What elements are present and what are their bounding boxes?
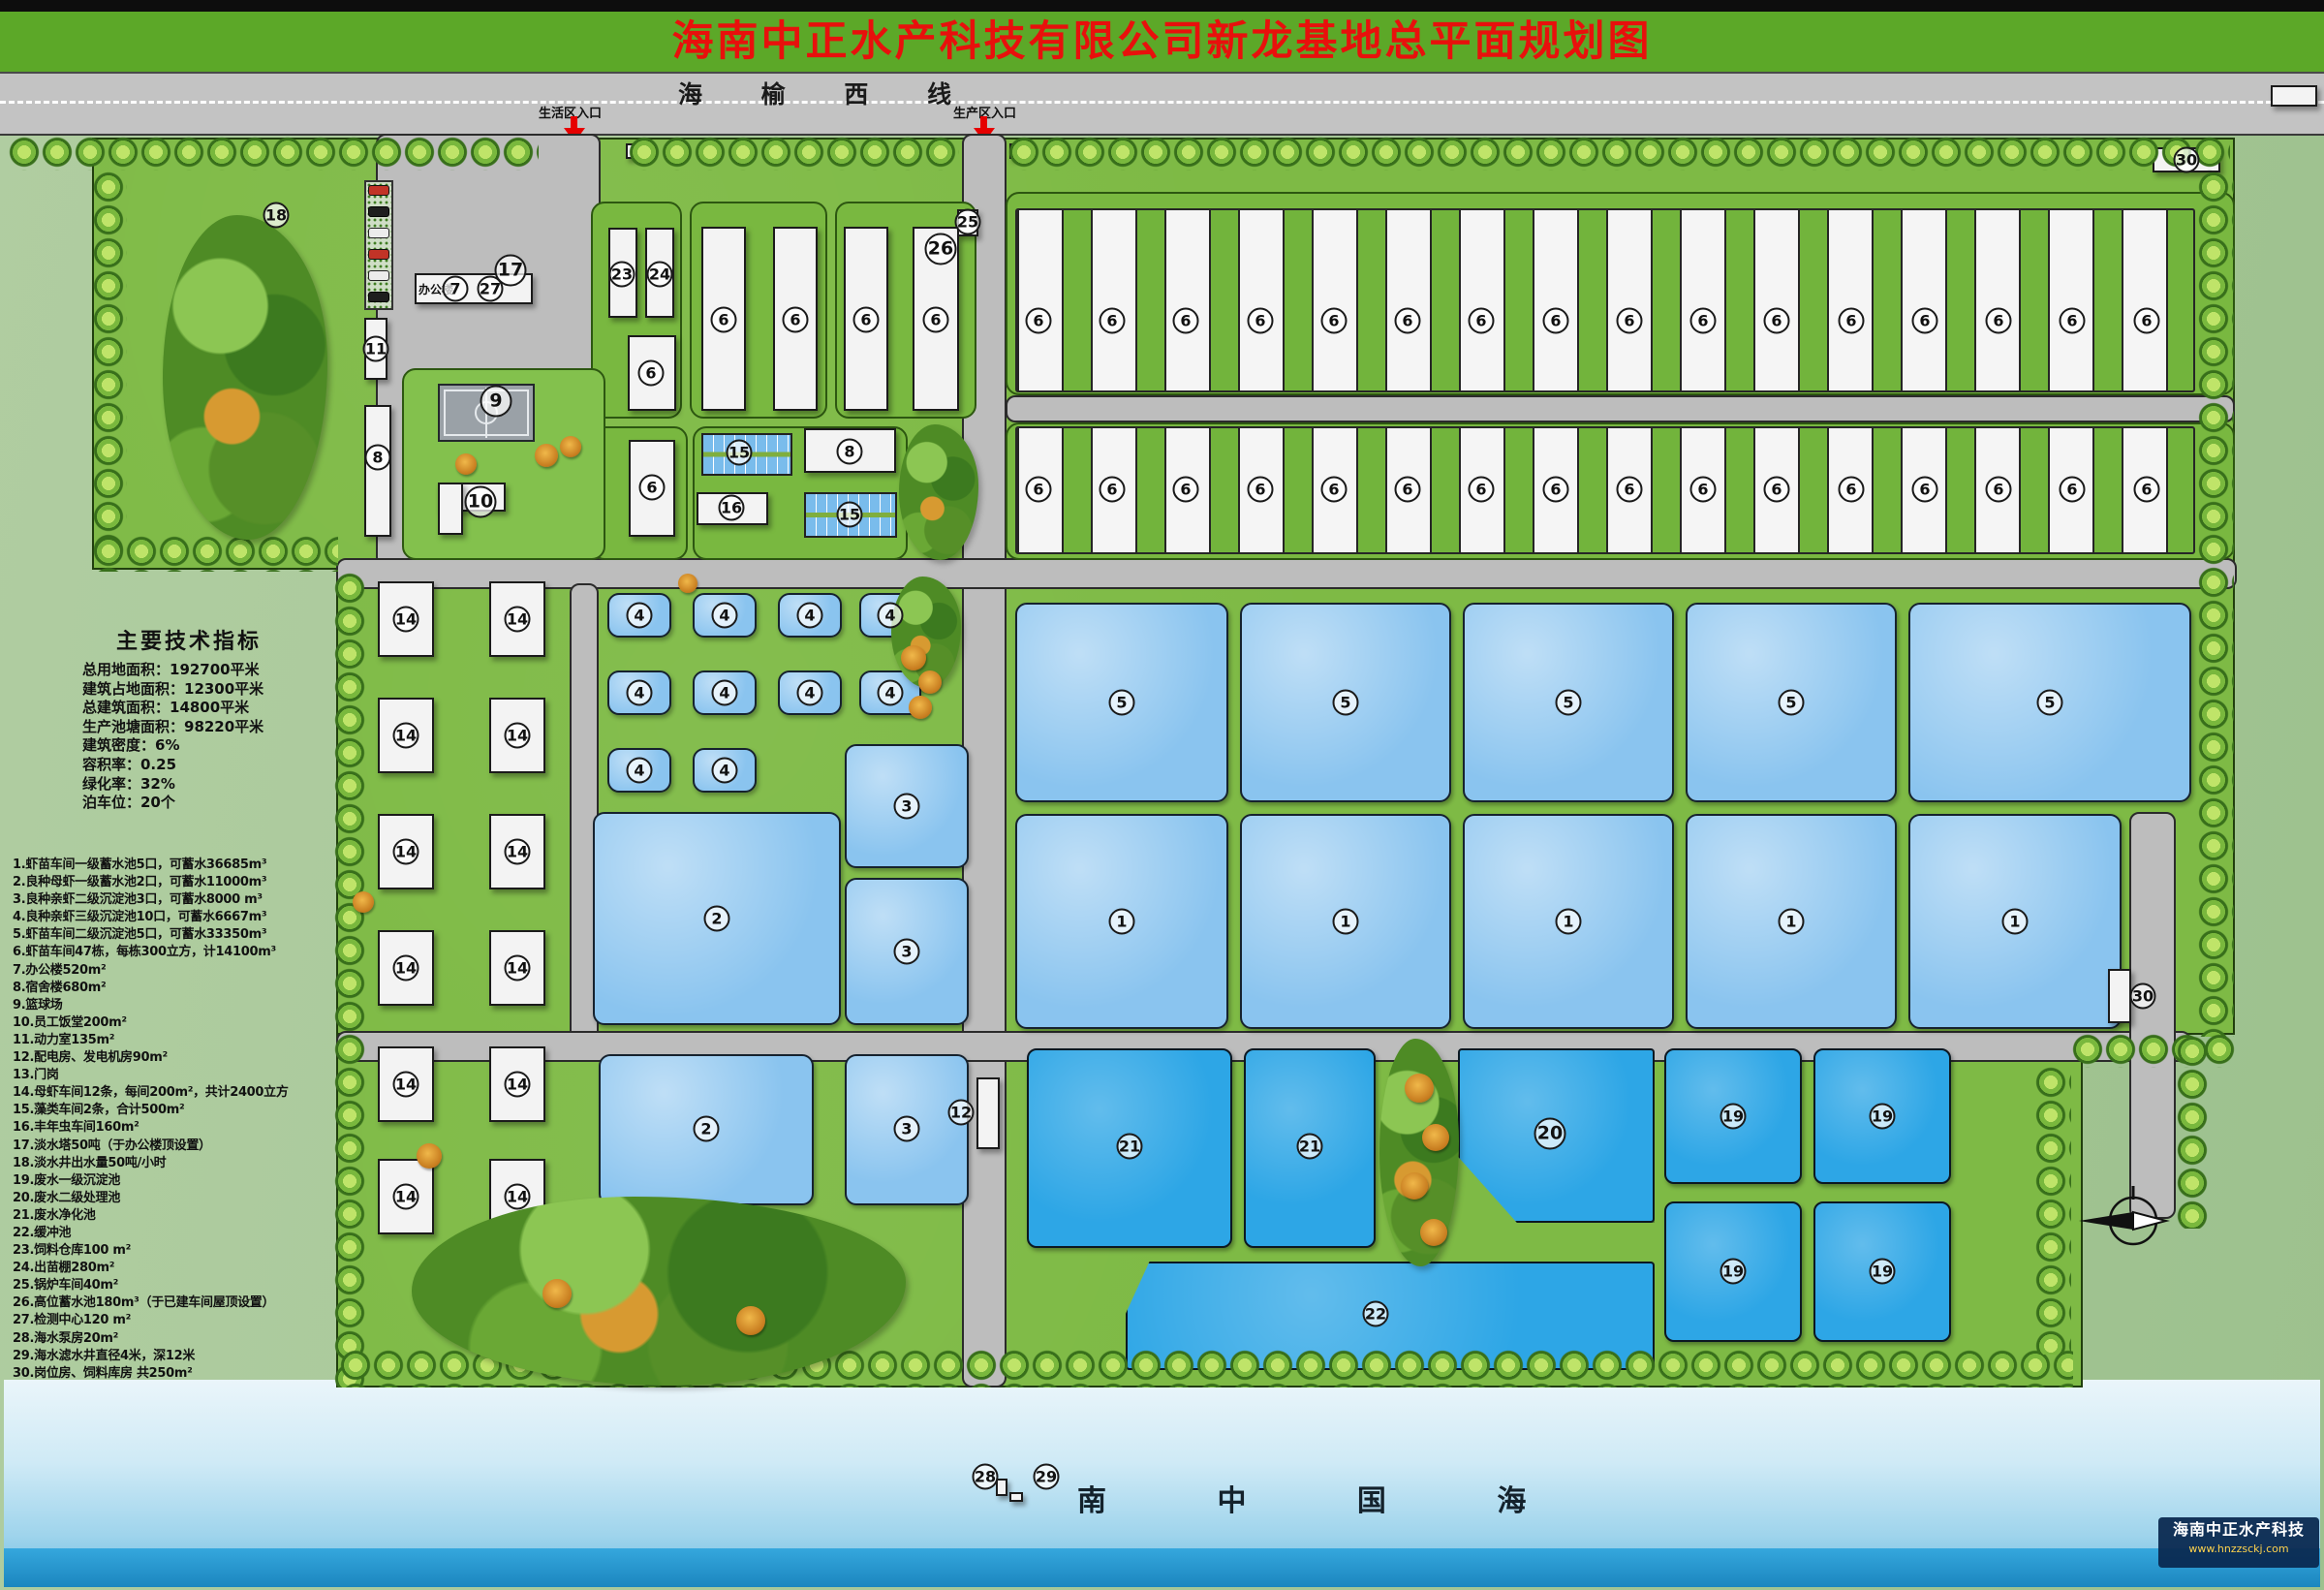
text-line: 5.虾苗车间二级沉淀池5口，可蓄水33350m³ — [13, 926, 289, 944]
map-otree — [535, 444, 558, 467]
entrance-living-arrow — [571, 116, 577, 128]
map-car-r — [368, 185, 389, 196]
text-line: 4.良种亲虾三级沉淀池10口，可蓄水6667m³ — [13, 909, 289, 926]
text-line: 30.岗位房、饲料库房 共250m² — [13, 1365, 289, 1383]
map-bldg — [976, 1077, 1000, 1149]
text-line: 绿化率：32% — [82, 775, 263, 795]
circle-label-11: 11 — [363, 336, 389, 362]
map-otree — [909, 696, 932, 719]
text-line: 11.动力室135m² — [13, 1032, 289, 1049]
circle-label-6: 6 — [1764, 308, 1790, 334]
map-bldg — [364, 405, 391, 537]
text-line: 14.母虾车间12条，每间200m²，共计2400立方 — [13, 1084, 289, 1102]
text-line: 19.废水一级沉淀池 — [13, 1172, 289, 1190]
circle-label-6: 6 — [1100, 477, 1126, 503]
circle-label-15: 15 — [727, 440, 753, 466]
map-car-k — [368, 206, 389, 217]
circle-label-12: 12 — [948, 1100, 975, 1126]
circle-label-6: 6 — [1026, 308, 1052, 334]
text-line: 6.虾苗车间47栋，每栋300立方，计14100m³ — [13, 944, 289, 961]
text-line: 12.配电房、发电机房90m² — [13, 1049, 289, 1067]
text-line: 25.锅炉车间40m² — [13, 1277, 289, 1294]
text-line: 3.良种亲虾二级沉淀池3口，可蓄水8000 m³ — [13, 891, 289, 909]
circle-label-14: 14 — [505, 1184, 531, 1210]
circle-label-21: 21 — [1297, 1134, 1323, 1160]
circle-label-6: 6 — [1173, 308, 1199, 334]
text-line: 9.篮球场 — [13, 997, 289, 1014]
circle-label-6: 6 — [1100, 308, 1126, 334]
text-line: 建筑占地面积：12300平米 — [82, 680, 263, 700]
text-line: 23.饲料仓库100 m² — [13, 1242, 289, 1260]
circle-label-6: 6 — [1321, 477, 1348, 503]
text-line: 22.缓冲池 — [13, 1225, 289, 1242]
map-otree — [1401, 1172, 1428, 1200]
circle-label-9: 9 — [480, 386, 512, 418]
map-otree — [1420, 1219, 1447, 1246]
map-bldg — [2108, 969, 2131, 1023]
circle-label-5: 5 — [1556, 690, 1582, 716]
text-line: 建筑密度：6% — [82, 736, 263, 756]
circle-label-1: 1 — [1109, 909, 1135, 935]
circle-label-28: 28 — [973, 1464, 999, 1490]
circle-label-6: 6 — [1248, 477, 1274, 503]
map-trow — [628, 136, 959, 171]
text-line: 13.门岗 — [13, 1067, 289, 1084]
circle-label-1: 1 — [1779, 909, 1805, 935]
text-line: 17.淡水塔50吨（于办公楼顶设置） — [13, 1138, 289, 1155]
circle-label-6: 6 — [638, 360, 665, 387]
circle-label-22: 22 — [1363, 1301, 1389, 1327]
circle-label-4: 4 — [797, 603, 823, 629]
map-trow — [92, 535, 338, 572]
circle-label-21: 21 — [1117, 1134, 1143, 1160]
map-car-r — [368, 249, 389, 260]
map-tcol — [92, 171, 127, 572]
circle-label-3: 3 — [894, 939, 920, 965]
tech-indicators-list: 总用地面积：192700平米建筑占地面积：12300平米总建筑面积：14800平… — [82, 661, 263, 813]
circle-label-5: 5 — [1333, 690, 1359, 716]
circle-label-6: 6 — [2134, 477, 2160, 503]
map-car-w — [368, 270, 389, 281]
circle-label-6: 6 — [1617, 477, 1643, 503]
logo-company-name: 海南中正水产科技 — [2158, 1517, 2319, 1543]
circle-label-4: 4 — [712, 680, 738, 706]
map-otree — [918, 670, 942, 694]
circle-label-14: 14 — [393, 1184, 419, 1210]
circle-label-19: 19 — [1720, 1104, 1747, 1130]
map-bldg — [1009, 1492, 1023, 1502]
circle-label-6: 6 — [1617, 308, 1643, 334]
map-otree — [542, 1279, 572, 1308]
circle-label-3: 3 — [894, 1116, 920, 1142]
circle-label-6: 6 — [1543, 477, 1569, 503]
circle-label-5: 5 — [1779, 690, 1805, 716]
circle-label-6: 6 — [1690, 308, 1717, 334]
circle-label-1: 1 — [2002, 909, 2029, 935]
map-car-w — [368, 228, 389, 238]
circle-label-6: 6 — [783, 307, 809, 333]
circle-label-24: 24 — [647, 262, 673, 288]
circle-label-8: 8 — [365, 445, 391, 471]
circle-label-6: 6 — [2134, 308, 2160, 334]
text-line: 8.宿舍楼680m² — [13, 980, 289, 997]
circle-label-6: 6 — [1912, 308, 1938, 334]
page-title: 海南中正水产科技有限公司新龙基地总平面规划图 — [0, 14, 2324, 70]
circle-label-4: 4 — [712, 603, 738, 629]
company-logo: 海南中正水产科技 www.hnzzsckj.com — [2158, 1517, 2319, 1568]
map-otree — [1422, 1124, 1449, 1151]
circle-label-6: 6 — [1469, 477, 1495, 503]
circle-label-6: 6 — [1543, 308, 1569, 334]
circle-label-15: 15 — [837, 502, 863, 528]
circle-label-6: 6 — [1690, 477, 1717, 503]
circle-label-26: 26 — [925, 234, 957, 265]
text-line: 24.出苗棚280m² — [13, 1260, 289, 1277]
map-otree — [455, 453, 477, 475]
tech-indicators-title: 主要技术指标 — [116, 624, 262, 655]
circle-label-6: 6 — [1395, 477, 1421, 503]
circle-label-6: 6 — [1248, 308, 1274, 334]
circle-label-14: 14 — [505, 607, 531, 633]
circle-label-5: 5 — [1109, 690, 1135, 716]
circle-label-4: 4 — [878, 603, 904, 629]
circle-label-14: 14 — [393, 723, 419, 749]
map-otree — [736, 1306, 765, 1335]
circle-label-19: 19 — [1870, 1104, 1896, 1130]
circle-label-6: 6 — [1395, 308, 1421, 334]
highway-center-dash — [0, 101, 2324, 104]
text-line: 总建筑面积：14800平米 — [82, 699, 263, 718]
circle-label-14: 14 — [393, 607, 419, 633]
map-otree — [560, 436, 581, 457]
map-tcol — [2034, 1066, 2071, 1355]
text-line: 21.废水净化池 — [13, 1207, 289, 1225]
map-stripband — [1015, 208, 2195, 392]
map-otree — [1405, 1074, 1434, 1103]
circle-label-5: 5 — [2037, 690, 2063, 716]
map-trow — [2071, 1033, 2236, 1068]
circle-label-1: 1 — [1333, 909, 1359, 935]
map-otree — [901, 645, 926, 670]
highway — [0, 72, 2324, 136]
map-road — [336, 558, 2237, 589]
circle-label-6: 6 — [711, 307, 737, 333]
circle-label-4: 4 — [627, 680, 653, 706]
logo-url: www.hnzzsckj.com — [2158, 1543, 2319, 1556]
circle-label-4: 4 — [797, 680, 823, 706]
circle-label-3: 3 — [894, 794, 920, 820]
circle-label-6: 6 — [1839, 477, 1865, 503]
text-line: 泊车位：20个 — [82, 794, 263, 813]
map-tcol — [333, 572, 366, 1387]
circle-label-4: 4 — [712, 758, 738, 784]
site-plan-canvas: 海南中正水产科技有限公司新龙基地总平面规划图 海 榆 西 线 生活区入口 生产区… — [0, 0, 2324, 1590]
text-line: 10.员工饭堂200m² — [13, 1014, 289, 1032]
map-bldg — [438, 483, 463, 535]
circle-label-4: 4 — [627, 603, 653, 629]
circle-label-18: 18 — [263, 203, 290, 229]
map-car-k — [368, 292, 389, 302]
text-line: 29.海水滤水井直径4米，深12米 — [13, 1348, 289, 1365]
text-line: 7.办公楼520m² — [13, 962, 289, 980]
circle-label-6: 6 — [1173, 477, 1199, 503]
text-line: 28.海水泵房20m² — [13, 1330, 289, 1348]
circle-label-10: 10 — [465, 486, 497, 518]
sea-deep-bar — [4, 1548, 2320, 1587]
map-otree — [678, 574, 697, 593]
text-line: 2.良种母虾一级蓄水池2口，可蓄水11000m³ — [13, 874, 289, 891]
map-trow — [1007, 136, 2230, 171]
circle-label-30: 30 — [2130, 983, 2156, 1010]
map-otree — [417, 1143, 442, 1169]
text-line: 26.高位蓄水池180m³（于已建车间屋顶设置） — [13, 1294, 289, 1312]
circle-label-25: 25 — [955, 209, 981, 235]
map-bldg — [996, 1479, 1007, 1496]
circle-label-6: 6 — [853, 307, 880, 333]
circle-label-6: 6 — [1764, 477, 1790, 503]
map-bldg — [2271, 85, 2317, 107]
circle-label-6: 6 — [639, 475, 666, 501]
map-road — [2129, 812, 2176, 1219]
circle-label-19: 19 — [1720, 1259, 1747, 1285]
map-tcol — [2197, 171, 2234, 1037]
circle-label-6: 6 — [1321, 308, 1348, 334]
circle-label-6: 6 — [2060, 308, 2086, 334]
circle-label-6: 6 — [1026, 477, 1052, 503]
sea-name: 南 中 国 海 — [1077, 1477, 1576, 1519]
map-otree — [353, 891, 374, 913]
circle-label-29: 29 — [1034, 1464, 1060, 1490]
circle-label-14: 14 — [505, 723, 531, 749]
circle-label-7: 7 — [443, 276, 469, 302]
text-line: 18.淡水井出水量50吨/小时 — [13, 1155, 289, 1172]
circle-label-4: 4 — [878, 680, 904, 706]
map-road — [1006, 395, 2235, 422]
circle-label-14: 14 — [393, 1072, 419, 1098]
text-line: 16.丰年虫车间160m² — [13, 1119, 289, 1137]
entrance-production-arrow — [980, 116, 987, 128]
circle-label-1: 1 — [1556, 909, 1582, 935]
circle-label-6: 6 — [1986, 308, 2012, 334]
circle-label-20: 20 — [1534, 1118, 1566, 1150]
text-line: 27.检测中心120 m² — [13, 1312, 289, 1329]
circle-label-19: 19 — [1870, 1259, 1896, 1285]
compass-icon — [2073, 1180, 2180, 1252]
circle-label-30: 30 — [2174, 147, 2200, 173]
legend-list: 1.虾苗车间一级蓄水池5口，可蓄水36685m³2.良种母虾一级蓄水池2口，可蓄… — [13, 857, 289, 1383]
circle-label-6: 6 — [1469, 308, 1495, 334]
map-tcol — [2176, 1035, 2209, 1229]
circle-label-23: 23 — [609, 262, 635, 288]
circle-label-8: 8 — [837, 439, 863, 465]
highway-name: 海 榆 西 线 — [678, 76, 969, 110]
map-park — [364, 180, 393, 310]
text-line: 总用地面积：192700平米 — [82, 661, 263, 680]
text-line: 容积率：0.25 — [82, 756, 263, 775]
circle-label-2: 2 — [704, 906, 730, 932]
circle-label-6: 6 — [1986, 477, 2012, 503]
circle-label-6: 6 — [923, 307, 949, 333]
circle-label-14: 14 — [393, 839, 419, 865]
circle-label-6: 6 — [1912, 477, 1938, 503]
text-line: 1.虾苗车间一级蓄水池5口，可蓄水36685m³ — [13, 857, 289, 874]
circle-label-14: 14 — [393, 955, 419, 982]
circle-label-14: 14 — [505, 955, 531, 982]
top-black-strip — [0, 0, 2324, 12]
circle-label-27: 27 — [478, 276, 504, 302]
circle-label-6: 6 — [1839, 308, 1865, 334]
circle-label-16: 16 — [719, 495, 745, 521]
circle-label-2: 2 — [694, 1116, 720, 1142]
map-trow — [8, 136, 539, 171]
text-line: 生产池塘面积：98220平米 — [82, 718, 263, 737]
text-line: 20.废水二级处理池 — [13, 1190, 289, 1207]
text-line: 15.藻类车间2条，合计500m² — [13, 1102, 289, 1119]
circle-label-14: 14 — [505, 839, 531, 865]
circle-label-4: 4 — [627, 758, 653, 784]
circle-label-6: 6 — [2060, 477, 2086, 503]
circle-label-14: 14 — [505, 1072, 531, 1098]
